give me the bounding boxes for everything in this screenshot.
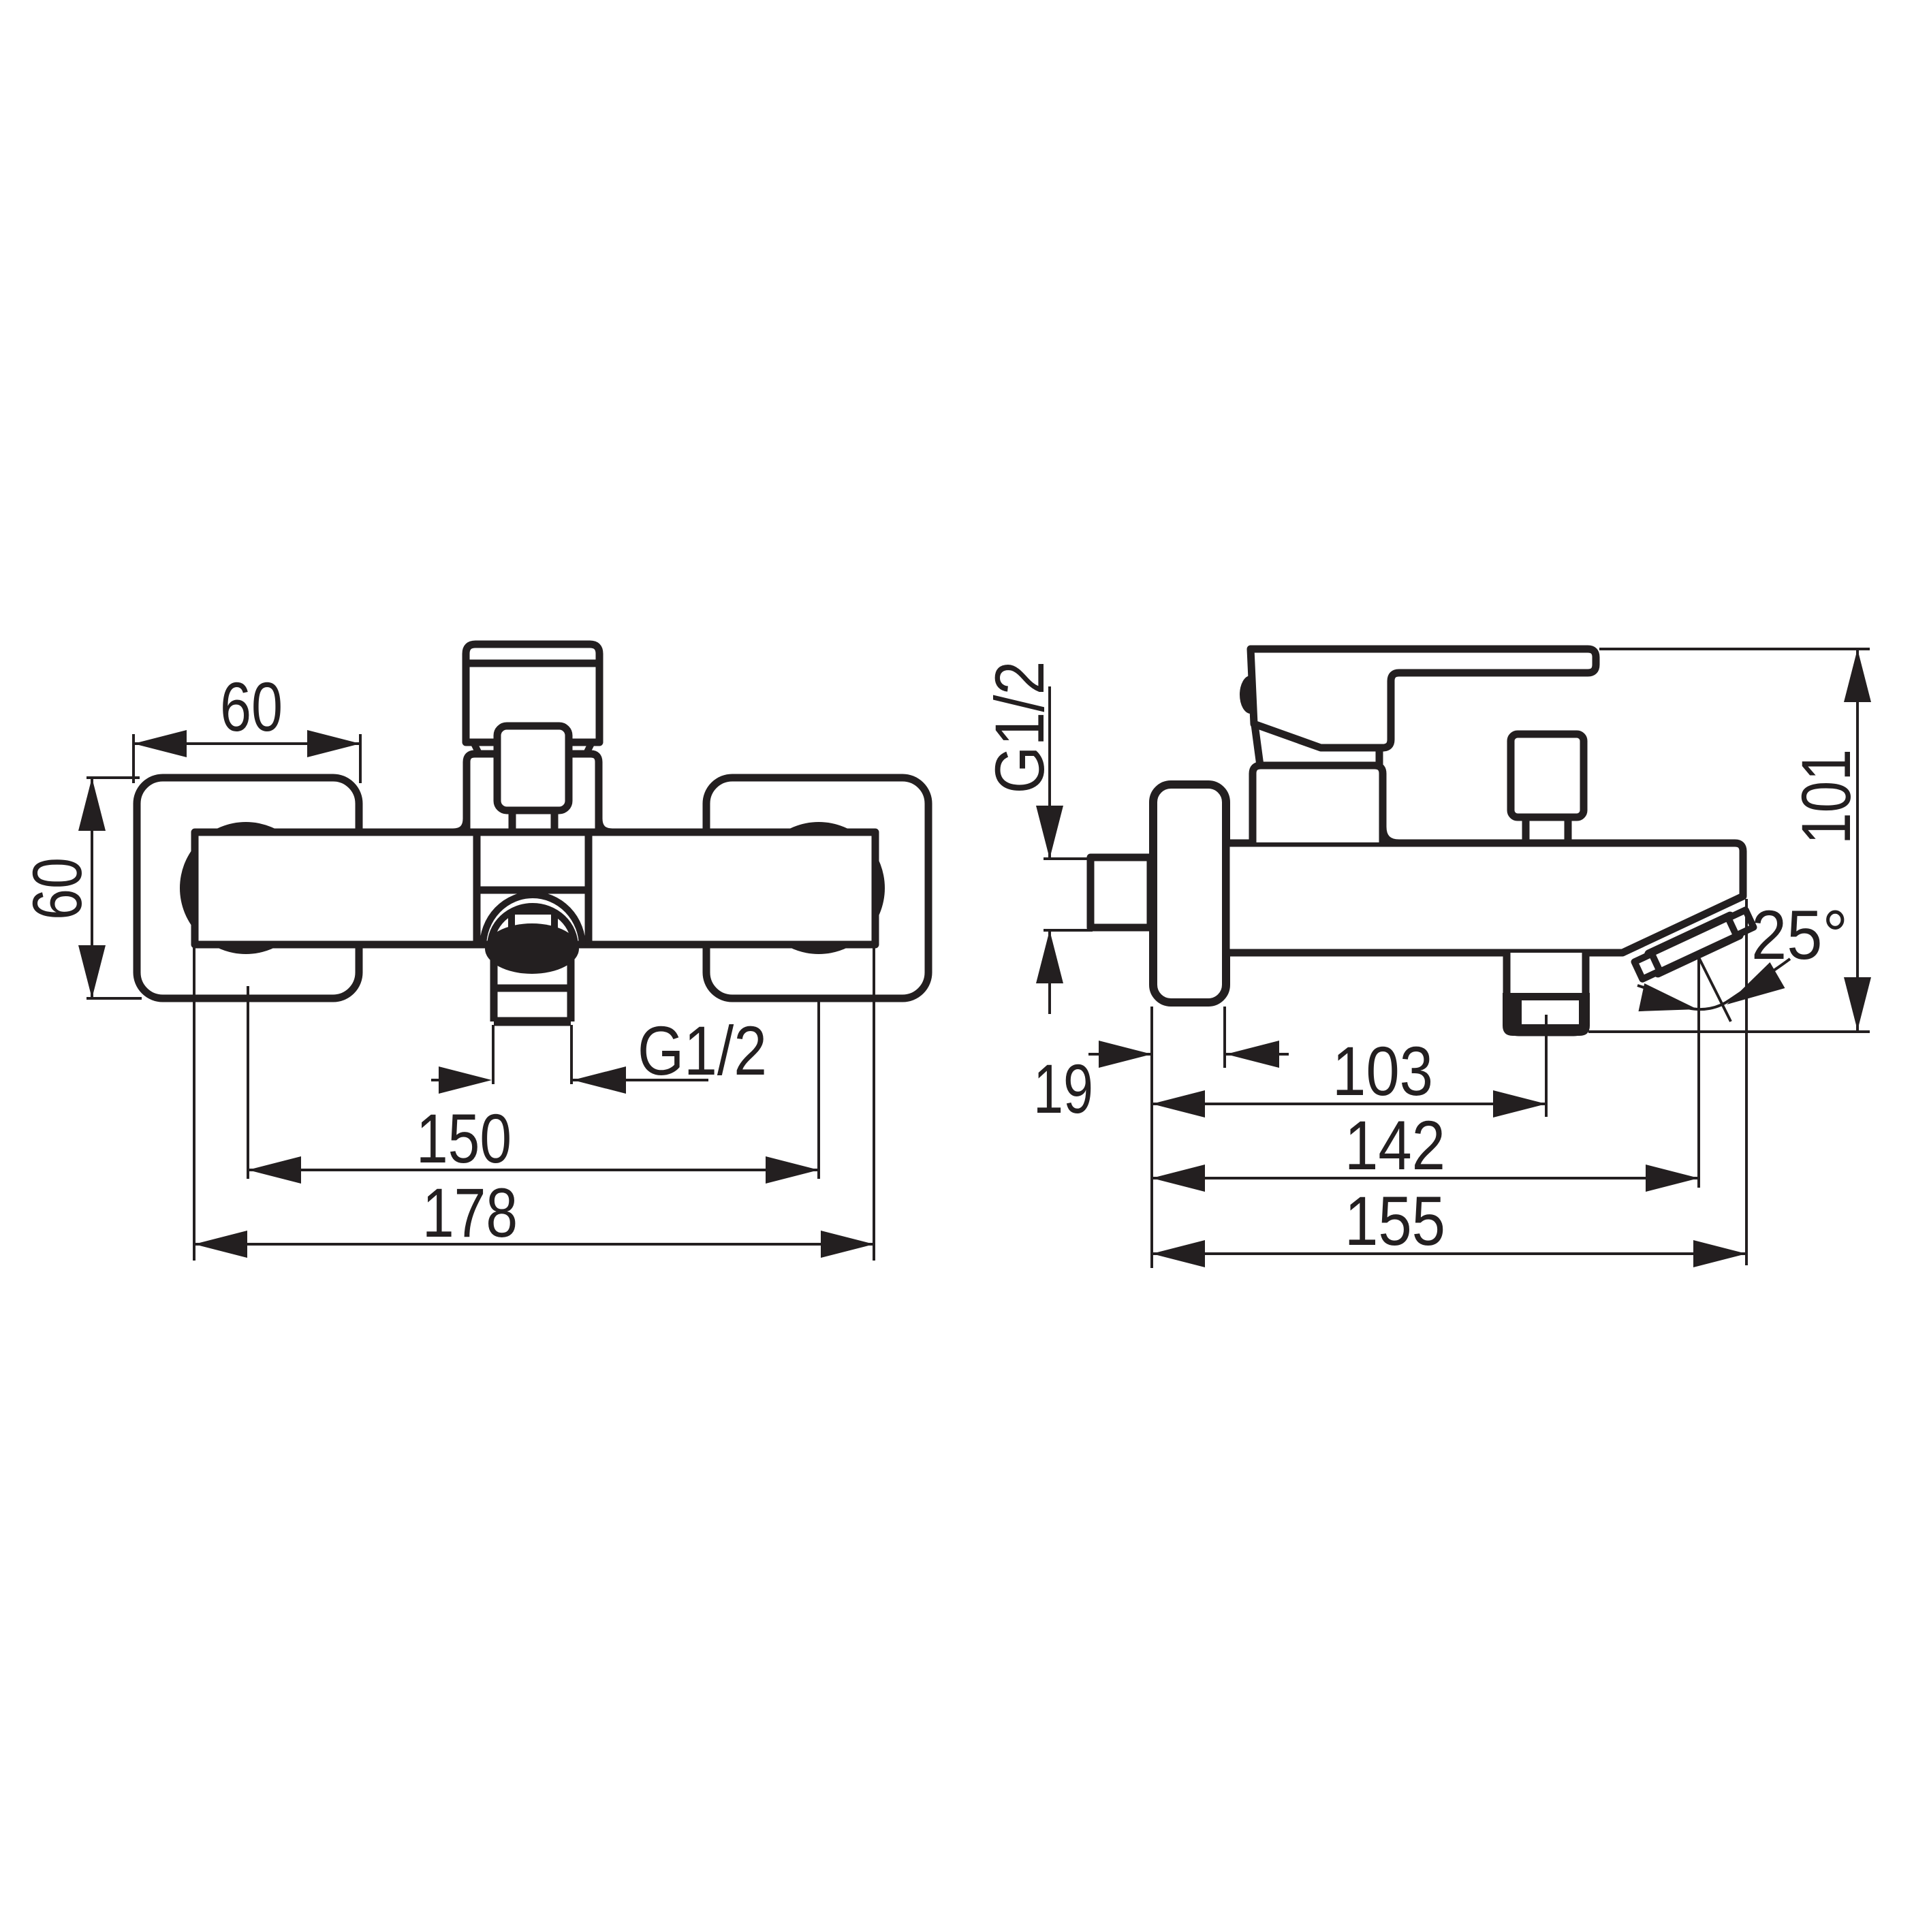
svg-text:178: 178 [422,1174,518,1252]
svg-text:155: 155 [1345,1182,1445,1260]
svg-text:G1/2: G1/2 [981,661,1058,794]
svg-text:19: 19 [1033,1050,1093,1128]
svg-text:101: 101 [1787,749,1865,844]
svg-text:60: 60 [220,668,283,746]
svg-text:25°: 25° [1751,896,1848,974]
svg-text:103: 103 [1332,1032,1433,1110]
svg-text:G1/2: G1/2 [638,1012,767,1090]
svg-text:150: 150 [416,1100,512,1177]
svg-text:60: 60 [18,857,96,920]
svg-text:142: 142 [1345,1107,1445,1184]
